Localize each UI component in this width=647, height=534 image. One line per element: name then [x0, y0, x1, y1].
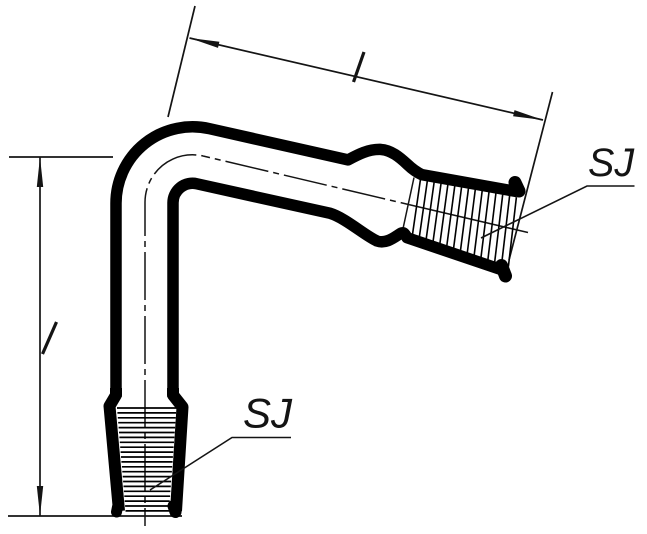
svg-text:SJ: SJ: [243, 390, 293, 437]
svg-text:SJ: SJ: [588, 141, 635, 185]
